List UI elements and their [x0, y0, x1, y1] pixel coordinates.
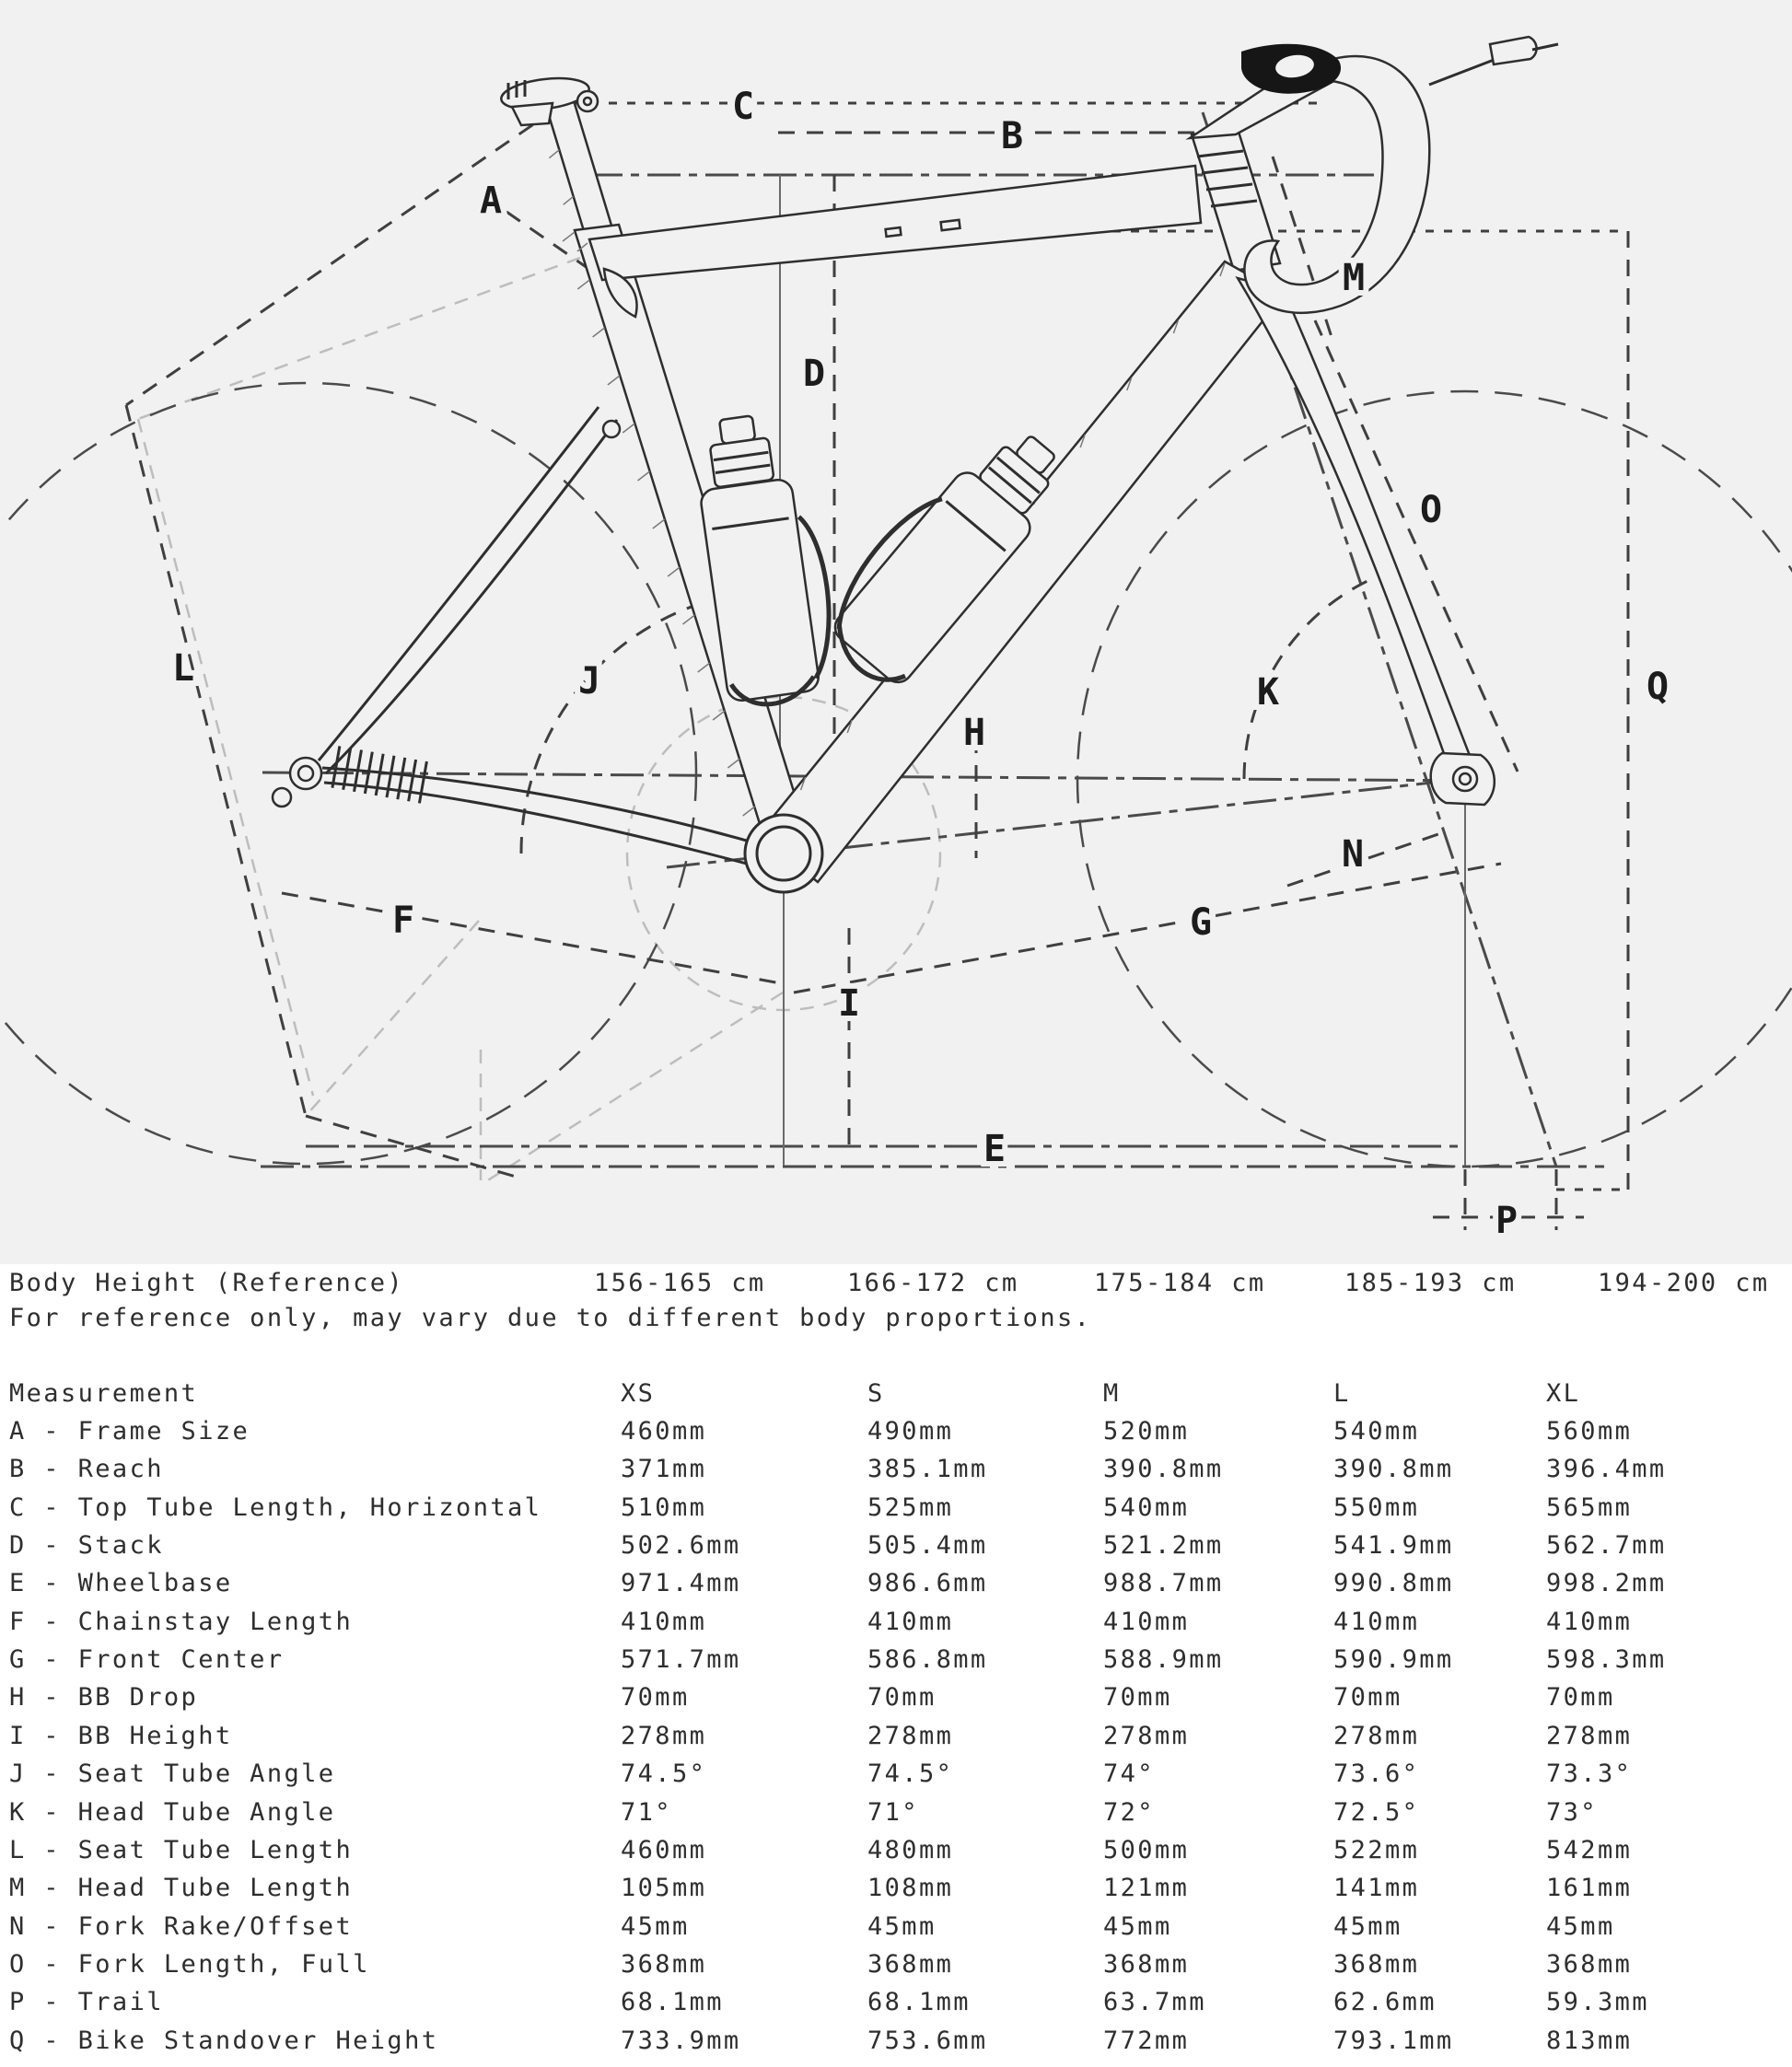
spec-row-cell: 971.4mm: [621, 1569, 741, 1597]
spec-row-cell: 390.8mm: [1333, 1455, 1454, 1483]
spec-row-cell: 371mm: [621, 1455, 706, 1483]
dim-label-o: O: [1420, 489, 1442, 531]
spec-row-cell: 385.1mm: [867, 1455, 988, 1483]
body-height-value: 166-172 cm: [847, 1269, 1019, 1297]
spec-row-cell: 59.3mm: [1546, 1988, 1649, 2016]
spec-row-cell: 73°: [1546, 1798, 1598, 1827]
spec-row-label: P - Trail: [9, 1988, 164, 2016]
front-center-line: [794, 864, 1501, 993]
spec-row-cell: 502.6mm: [621, 1531, 741, 1560]
spec-row-cell: 108mm: [867, 1874, 953, 1902]
dim-label-h: H: [963, 712, 985, 754]
spec-row-label: J - Seat Tube Angle: [9, 1759, 335, 1788]
spec-row-label: A - Frame Size: [9, 1417, 250, 1446]
spec-row-cell: 278mm: [1546, 1722, 1632, 1750]
chainstay-line: [282, 893, 781, 983]
table-header-cell: L: [1333, 1379, 1351, 1408]
axle-coil: [332, 746, 427, 803]
dim-label-l: L: [172, 647, 194, 690]
spec-row-cell: 121mm: [1103, 1874, 1189, 1902]
dim-label-i: I: [838, 982, 860, 1025]
dim-label-k: K: [1257, 671, 1279, 714]
spec-row-cell: 70mm: [1333, 1683, 1402, 1712]
spec-row-cell: 988.7mm: [1103, 1569, 1224, 1597]
spec-row-cell: 772mm: [1103, 2026, 1189, 2055]
spec-row-cell: 73.6°: [1333, 1759, 1419, 1788]
spec-row-cell: 72.5°: [1333, 1798, 1419, 1827]
down-tube: [759, 261, 1284, 882]
spec-row-cell: 410mm: [867, 1608, 953, 1636]
spec-row-cell: 71°: [621, 1798, 672, 1827]
spec-row-cell: 510mm: [621, 1493, 706, 1522]
spec-row-cell: 45mm: [867, 1912, 937, 1941]
spec-row-label: H - BB Drop: [9, 1683, 198, 1712]
spec-row-cell: 590.9mm: [1333, 1645, 1454, 1674]
spec-row-cell: 71°: [867, 1798, 919, 1827]
spec-row-cell: 540mm: [1103, 1493, 1189, 1522]
spec-row-cell: 562.7mm: [1546, 1531, 1667, 1560]
dim-label-q: Q: [1647, 666, 1669, 708]
spec-row-label: I - BB Height: [9, 1722, 233, 1750]
bottom-bracket: [745, 815, 822, 892]
spec-row-cell: 74.5°: [621, 1759, 706, 1788]
front-dropout: [1431, 753, 1495, 805]
spec-row-cell: 70mm: [1103, 1683, 1172, 1712]
dim-label-p: P: [1495, 1200, 1518, 1242]
spec-row-cell: 45mm: [1103, 1912, 1172, 1941]
spec-row-cell: 45mm: [621, 1912, 690, 1941]
dim-label-g: G: [1190, 901, 1212, 944]
spec-row-label: K - Head Tube Angle: [9, 1798, 335, 1827]
body-height-value: 194-200 cm: [1598, 1269, 1770, 1297]
spec-row-cell: 520mm: [1103, 1417, 1189, 1446]
spec-row-cell: 62.6mm: [1333, 1988, 1437, 2016]
spec-row-label: C - Top Tube Length, Horizontal: [9, 1493, 541, 1522]
spec-row-cell: 63.7mm: [1103, 1988, 1206, 2016]
spec-row-label: G - Front Center: [9, 1645, 285, 1674]
spec-row-cell: 586.8mm: [867, 1645, 988, 1674]
dim-label-n: N: [1342, 833, 1364, 876]
spec-row-cell: 460mm: [621, 1417, 706, 1446]
spec-row-cell: 390.8mm: [1103, 1455, 1224, 1483]
spec-row-label: M - Head Tube Length: [9, 1874, 353, 1902]
spec-row-cell: 505.4mm: [867, 1531, 988, 1560]
spec-row-cell: 70mm: [1546, 1683, 1615, 1712]
saddle-clamp: [499, 74, 598, 125]
spec-row-cell: 278mm: [621, 1722, 706, 1750]
dim-label-c: C: [732, 86, 754, 128]
table-header-cell: S: [867, 1379, 885, 1408]
dim-label-a: A: [480, 180, 502, 222]
spec-row-cell: 368mm: [867, 1950, 953, 1979]
spec-row-label: L - Seat Tube Length: [9, 1836, 353, 1864]
spec-row-cell: 588.9mm: [1103, 1645, 1224, 1674]
spec-row-cell: 368mm: [621, 1950, 706, 1979]
spec-row-cell: 161mm: [1546, 1874, 1632, 1902]
seat-stay: [319, 407, 599, 761]
spec-row-cell: 541.9mm: [1333, 1531, 1454, 1560]
spec-row-cell: 793.1mm: [1333, 2026, 1454, 2055]
bike-geometry-page: A B C D E F G H I J K L M N O P Q Body H…: [0, 0, 1792, 2067]
top-tube: [589, 166, 1201, 280]
brake-lever: [1429, 57, 1501, 85]
spec-row-label: N - Fork Rake/Offset: [9, 1912, 353, 1941]
spec-row-cell: 368mm: [1333, 1950, 1419, 1979]
seat-tube-length-line: [126, 405, 306, 1116]
spec-row-cell: 522mm: [1333, 1836, 1419, 1864]
spec-row-cell: 70mm: [621, 1683, 690, 1712]
spec-row-label: E - Wheelbase: [9, 1569, 233, 1597]
spec-row-cell: 45mm: [1546, 1912, 1615, 1941]
spec-row-cell: 490mm: [867, 1417, 953, 1446]
spec-row-cell: 410mm: [1103, 1608, 1189, 1636]
spec-row-cell: 73.3°: [1546, 1759, 1632, 1788]
spec-row-label: F - Chainstay Length: [9, 1608, 353, 1636]
dim-label-d: D: [803, 353, 825, 395]
spec-row-cell: 141mm: [1333, 1874, 1419, 1902]
fork-length-line: [1315, 320, 1518, 772]
body-height-value: 185-193 cm: [1344, 1269, 1517, 1297]
spec-row-cell: 70mm: [867, 1683, 937, 1712]
geometry-diagram: A B C D E F G H I J K L M N O P Q: [0, 0, 1792, 1264]
rear-dropout: [273, 746, 426, 807]
spec-row-cell: 500mm: [1103, 1836, 1189, 1864]
spec-row-label: Q - Bike Standover Height: [9, 2026, 438, 2055]
seatpost: [545, 98, 615, 243]
spec-row-cell: 105mm: [621, 1874, 706, 1902]
spec-row-cell: 990.8mm: [1333, 1569, 1454, 1597]
spec-row-cell: 68.1mm: [621, 1988, 724, 2016]
spec-row-cell: 396.4mm: [1546, 1455, 1667, 1483]
table-header-cell: M: [1103, 1379, 1121, 1408]
spec-row-cell: 368mm: [1103, 1950, 1189, 1979]
spec-row-cell: 753.6mm: [867, 2026, 988, 2055]
spec-row-cell: 68.1mm: [867, 1988, 971, 2016]
body-height-label: Body Height (Reference): [9, 1269, 404, 1297]
table-header-cell: XS: [621, 1379, 655, 1408]
spec-row-cell: 460mm: [621, 1836, 706, 1864]
dim-label-e: E: [983, 1128, 1006, 1170]
spec-row-cell: 550mm: [1333, 1493, 1419, 1522]
spec-row-cell: 74°: [1103, 1759, 1155, 1788]
spec-row-cell: 525mm: [867, 1493, 953, 1522]
dim-label-f: F: [392, 900, 414, 942]
dim-label-b: B: [1001, 115, 1023, 157]
spec-row-label: B - Reach: [9, 1455, 164, 1483]
spec-row-cell: 410mm: [621, 1608, 706, 1636]
spec-row-cell: 560mm: [1546, 1417, 1632, 1446]
spec-row-cell: 368mm: [1546, 1950, 1632, 1979]
spec-row-cell: 45mm: [1333, 1912, 1402, 1941]
spec-row-cell: 410mm: [1546, 1608, 1632, 1636]
body-height-value: 156-165 cm: [594, 1269, 766, 1297]
spec-row-cell: 542mm: [1546, 1836, 1632, 1864]
spec-row-cell: 480mm: [867, 1836, 953, 1864]
body-height-value: 175-184 cm: [1094, 1269, 1266, 1297]
spec-row-cell: 733.9mm: [621, 2026, 741, 2055]
spec-row-label: D - Stack: [9, 1531, 164, 1560]
dim-label-j: J: [578, 660, 600, 703]
spec-row-label: O - Fork Length, Full: [9, 1950, 370, 1979]
spec-row-cell: 571.7mm: [621, 1645, 741, 1674]
spec-row-cell: 72°: [1103, 1798, 1155, 1827]
table-header-label: Measurement: [9, 1379, 198, 1408]
spec-row-cell: 998.2mm: [1546, 1569, 1667, 1597]
spec-row-cell: 410mm: [1333, 1608, 1419, 1636]
spec-row-cell: 278mm: [867, 1722, 953, 1750]
spec-row-cell: 521.2mm: [1103, 1531, 1224, 1560]
geometry-spec-sheet: Body Height (Reference) 156-165 cm 166-1…: [0, 1264, 1792, 2067]
geometry-drawing: A B C D E F G H I J K L M N O P Q: [0, 0, 1792, 1264]
spec-row-cell: 540mm: [1333, 1417, 1419, 1446]
spec-row-cell: 278mm: [1333, 1722, 1419, 1750]
spec-row-cell: 74.5°: [867, 1759, 953, 1788]
table-header-cell: XL: [1546, 1379, 1580, 1408]
dim-label-m: M: [1343, 257, 1365, 299]
spec-row-cell: 565mm: [1546, 1493, 1632, 1522]
spec-row-cell: 813mm: [1546, 2026, 1632, 2055]
spec-row-cell: 598.3mm: [1546, 1645, 1667, 1674]
spec-row-cell: 278mm: [1103, 1722, 1189, 1750]
spec-row-cell: 986.6mm: [867, 1569, 988, 1597]
